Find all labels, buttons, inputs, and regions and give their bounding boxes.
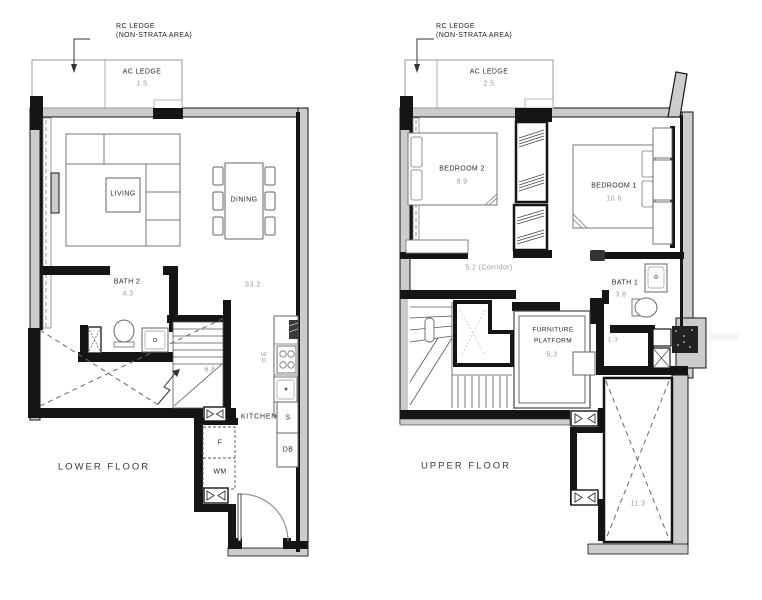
living-label: LIVING <box>110 191 135 198</box>
bath2-area: 4.3 <box>123 291 134 298</box>
lower-floor-plan <box>28 39 308 556</box>
lower-floor-title: LOWER FLOOR <box>58 462 150 473</box>
floorplan-page: RC LEDGE (NON-STRATA AREA) AC LEDGE 1.5 … <box>0 0 762 600</box>
door-swing-arc <box>241 494 288 541</box>
void-area: 11.3 <box>631 501 646 508</box>
entrance-door <box>234 494 291 549</box>
upper-floor-plan <box>400 39 706 554</box>
vent-damper-icon <box>204 407 226 421</box>
bath2-label: BATH 2 <box>114 279 140 286</box>
bath2-fixtures <box>88 320 168 353</box>
hood-label: H/ D <box>261 352 267 364</box>
hood-line2: D <box>261 358 267 364</box>
bath1-label: BATH 1 <box>612 280 638 287</box>
db-label: DB <box>283 447 294 454</box>
lower-ac-ledge-label: AC LEDGE <box>123 69 162 76</box>
service-niche <box>570 408 606 541</box>
platform-area: 5.3 <box>547 352 558 359</box>
upper-ac-ledge-label: AC LEDGE <box>470 69 509 76</box>
lower-rc-ledge-note: RC LEDGE (NON-STRATA AREA) <box>116 22 192 40</box>
rc-ledge-line2: (NON-STRATA AREA) <box>116 31 192 40</box>
corridor-label: 5.2 (Corridor) <box>465 265 512 272</box>
ac-condenser-icon <box>672 326 698 353</box>
dining-label: DINING <box>231 197 258 204</box>
platform-line1: FURNITURE <box>532 327 573 334</box>
upper-stairs <box>408 299 512 410</box>
bath1-fixtures <box>632 264 667 317</box>
platform-line2: PLATFORM <box>534 338 572 345</box>
lower-stairs-area: 6.8 <box>205 367 216 374</box>
rc-ledge-line2: (NON-STRATA AREA) <box>436 31 512 40</box>
fridge-label: F <box>218 440 223 447</box>
kitchen-label: KITCHEN <box>241 414 277 421</box>
bath1-area: 3.8 <box>616 292 627 299</box>
rc-ledge-line1: RC LEDGE <box>116 22 192 31</box>
fridge-washer-closet <box>203 427 235 489</box>
lower-ac-ledge-area: 1.5 <box>137 81 148 88</box>
wall-fixture <box>590 250 605 261</box>
toilet-icon <box>114 320 134 342</box>
lower-ac-ledge <box>32 60 182 109</box>
vent-damper-icon <box>571 490 598 505</box>
handrail-post <box>425 318 434 342</box>
upper-ac-ledge-area: 2.5 <box>484 81 495 88</box>
washer-label: WM <box>213 469 226 476</box>
bench <box>406 240 468 253</box>
bedroom1-area: 10.6 <box>606 196 621 203</box>
wardrobe <box>514 205 547 250</box>
toilet-icon <box>635 298 657 317</box>
upper-floor-title: UPPER FLOOR <box>421 461 511 472</box>
ledge-area-small: 1.3 <box>608 337 618 344</box>
sink-label: S <box>285 415 290 422</box>
rc-ledge-line1: RC LEDGE <box>436 22 512 31</box>
bedside-units <box>653 128 672 244</box>
upper-ac-ledge <box>405 60 553 108</box>
bedroom2-area: 8.9 <box>457 179 468 186</box>
lower-window-strip <box>43 118 51 328</box>
cooktop-icon <box>277 346 296 373</box>
wardrobe <box>516 122 547 202</box>
upper-void <box>604 378 672 542</box>
lower-main-area: 33.2 <box>245 280 261 289</box>
floor-plan-drawing <box>0 0 762 600</box>
kitchen-sink-icon <box>274 377 297 402</box>
upper-rc-ledge-note: RC LEDGE (NON-STRATA AREA) <box>436 22 512 40</box>
watermark: e.ouoio <box>699 332 739 343</box>
bedroom2-label: BEDROOM 2 <box>439 166 485 173</box>
bedroom1-label: BEDROOM 1 <box>591 183 637 190</box>
column <box>51 173 59 213</box>
kitchen-counter <box>274 316 298 467</box>
vent-damper-icon <box>571 411 598 426</box>
vent-damper-icon <box>204 488 228 503</box>
